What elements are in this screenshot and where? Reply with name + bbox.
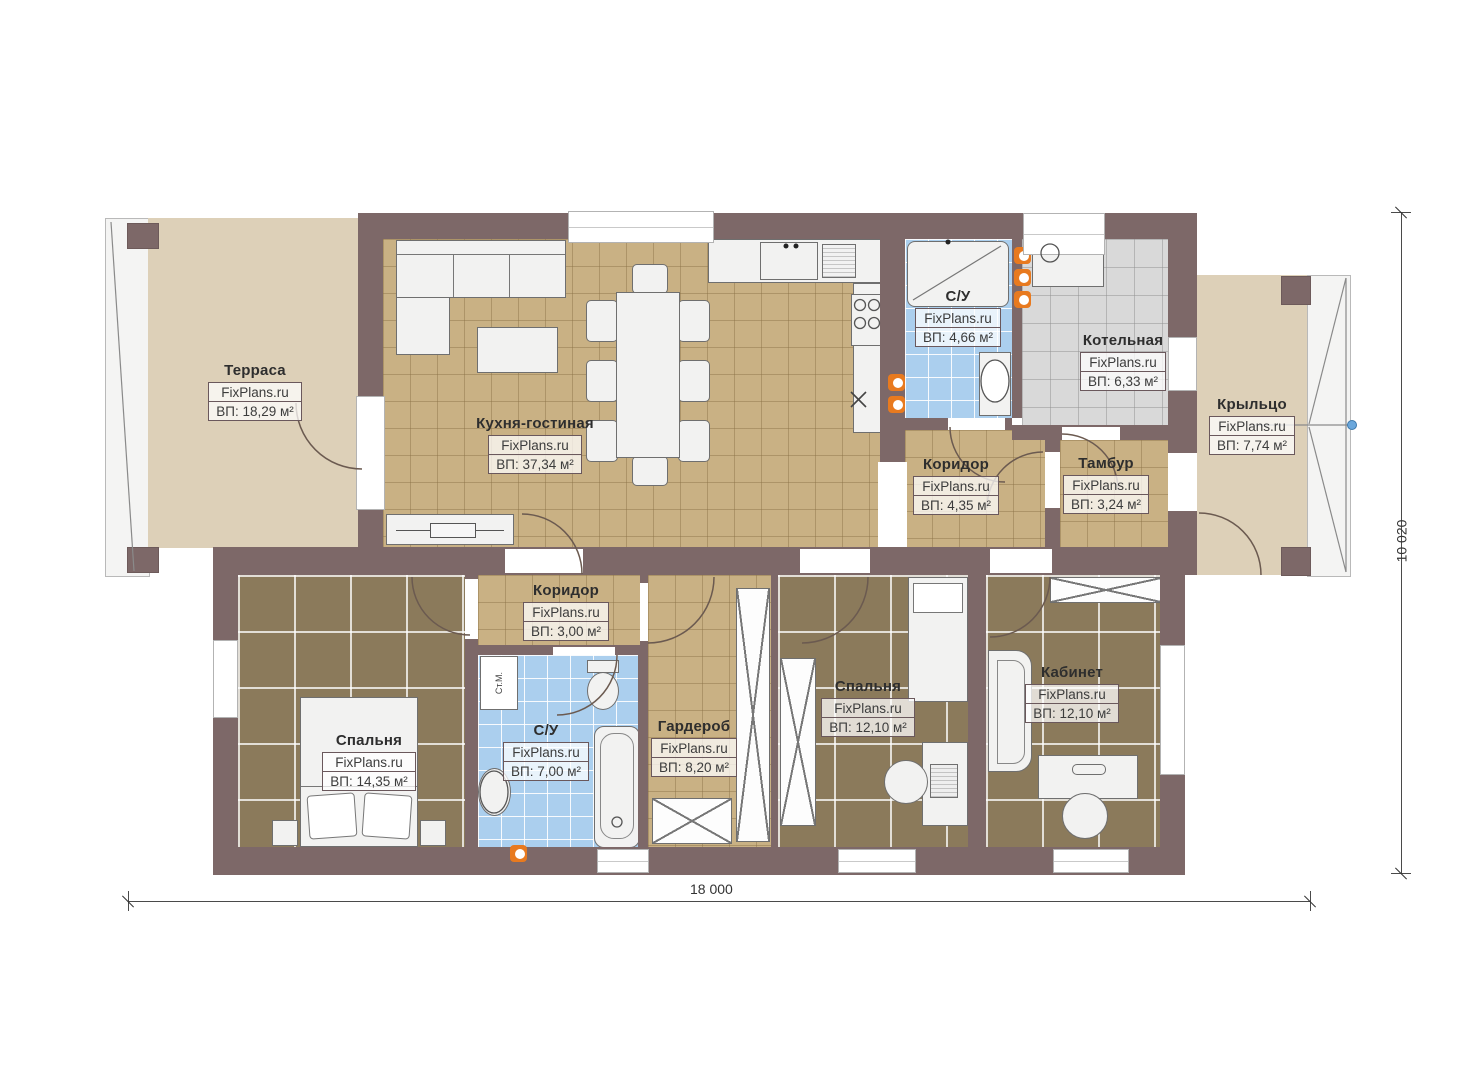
room-area: ВП: 3,24 м²: [1064, 495, 1148, 513]
radiator: [1014, 269, 1031, 286]
room-name: Крыльцо: [1202, 396, 1302, 413]
wall-bottom: [213, 847, 1185, 875]
wall-wardrobe-bedroom2: [771, 575, 778, 847]
watermark: FixPlans.ru: [524, 603, 608, 622]
terrace-door-glazing: [356, 396, 385, 510]
room-name: Спальня: [312, 732, 426, 749]
kitchen-hall-door-gap: [505, 549, 583, 573]
radiator: [888, 396, 905, 413]
room-area: ВП: 18,29 м²: [209, 402, 301, 420]
toilet-bowl: [587, 672, 619, 710]
radiator: [510, 845, 527, 862]
bathroom-lower-door-gap: [553, 647, 615, 655]
porch-column: [1282, 277, 1310, 304]
window-right-office: [1160, 645, 1185, 775]
dining-chair: [586, 300, 618, 342]
wardrobe-cabinet: [780, 658, 816, 826]
room-name: Спальня: [816, 678, 920, 695]
room-label-office: Кабинет FixPlans.ru ВП: 12,10 м²: [1022, 664, 1122, 723]
window-mullion: [1054, 861, 1128, 862]
watermark: FixPlans.ru: [1081, 353, 1165, 372]
radiator: [1014, 291, 1031, 308]
room-area: ВП: 12,10 м²: [822, 718, 914, 736]
desk-chair: [884, 760, 928, 804]
nightstand: [272, 820, 298, 846]
terrace-steps: [105, 218, 150, 577]
room-name: С/У: [912, 288, 1004, 305]
kitchen-sink: [760, 242, 818, 280]
watermark: FixPlans.ru: [1026, 685, 1118, 704]
terrace-column: [128, 548, 158, 572]
sofa-cushion-line: [509, 254, 510, 297]
pillow: [913, 583, 963, 613]
wardrobe-door-gap: [640, 583, 648, 641]
office-door-gap: [990, 549, 1052, 573]
watermark: FixPlans.ru: [489, 436, 581, 455]
room-area: ВП: 3,00 м²: [524, 622, 608, 640]
watermark: FixPlans.ru: [1210, 417, 1294, 436]
room-label-corridor-upper: Коридор FixPlans.ru ВП: 4,35 м²: [906, 456, 1006, 515]
room-area: ВП: 12,10 м²: [1026, 704, 1118, 722]
watermark: FixPlans.ru: [1064, 476, 1148, 495]
window-mullion: [569, 227, 713, 228]
wall-bathroom-left: [880, 239, 905, 465]
watermark: FixPlans.ru: [914, 477, 998, 496]
room-name: Коридор: [906, 456, 1006, 473]
boiler-door-gap: [1062, 427, 1120, 440]
wardrobe-cabinet: [736, 588, 770, 842]
window-bottom-bathroom: [597, 849, 649, 873]
dining-chair: [678, 360, 710, 402]
washing-machine: Ст.М.: [480, 656, 518, 710]
room-area: ВП: 8,20 м²: [652, 758, 736, 776]
room-label-bedroom-2: Спальня FixPlans.ru ВП: 12,10 м²: [816, 678, 920, 737]
dimension-height-label: 10 020: [1393, 520, 1409, 563]
porch-column: [1282, 548, 1310, 575]
watermark: FixPlans.ru: [209, 383, 301, 402]
sofa-chaise: [396, 297, 450, 355]
room-area: ВП: 7,74 м²: [1210, 436, 1294, 454]
window-mullion: [839, 861, 915, 862]
window-top-boiler: [1023, 213, 1105, 255]
bath-counter: [979, 352, 1011, 416]
room-label-porch: Крыльцо FixPlans.ru ВП: 7,74 м²: [1202, 396, 1302, 455]
window-left-bedroom1: [213, 640, 238, 718]
room-name: С/У: [500, 722, 592, 739]
sofa-cushion-line: [453, 254, 454, 297]
pillow: [362, 792, 413, 839]
room-area: ВП: 14,35 м²: [323, 772, 415, 790]
sofa-back-line: [397, 254, 565, 255]
bathroom-upper-door-gap: [948, 418, 1005, 430]
dining-chair: [586, 360, 618, 402]
room-name: Гардероб: [644, 718, 744, 735]
room-name: Коридор: [516, 582, 616, 599]
room-area: ВП: 6,33 м²: [1081, 372, 1165, 390]
wall-right-upper: [1168, 213, 1197, 575]
watermark: FixPlans.ru: [652, 739, 736, 758]
drainboard: [822, 244, 856, 278]
terrace-column: [128, 224, 158, 248]
wardrobe-cabinet: [1050, 577, 1162, 603]
window-mullion: [598, 861, 648, 862]
room-name: Терраса: [196, 362, 314, 379]
room-label-corridor-lower: Коридор FixPlans.ru ВП: 3,00 м²: [516, 582, 616, 641]
porch-door-gap: [1168, 453, 1197, 511]
wardrobe-cabinet: [652, 798, 732, 844]
bathtub: [594, 726, 640, 848]
floor-plan: Ст.М.: [0, 0, 1474, 1080]
stove: [851, 294, 882, 346]
room-label-bathroom-lower: С/У FixPlans.ru ВП: 7,00 м²: [500, 722, 592, 781]
room-area: ВП: 4,66 м²: [916, 328, 1000, 346]
watermark: FixPlans.ru: [504, 743, 588, 762]
wall-bedroom2-office: [968, 575, 986, 847]
bedroom2-door-gap: [800, 549, 870, 573]
bedroom1-door-gap: [465, 579, 478, 639]
room-label-kitchen-living: Кухня-гостиная FixPlans.ru ВП: 37,34 м²: [475, 415, 595, 474]
dining-chair: [678, 420, 710, 462]
office-sofa-seat: [997, 660, 1025, 764]
porch-steps: [1307, 275, 1351, 577]
sofa: [396, 240, 566, 298]
nightstand: [420, 820, 446, 846]
room-label-boiler: Котельная FixPlans.ru ВП: 6,33 м²: [1073, 332, 1173, 391]
dining-chair: [632, 264, 668, 294]
window-mullion: [1024, 234, 1104, 235]
room-name: Котельная: [1073, 332, 1173, 349]
room-name: Кабинет: [1022, 664, 1122, 681]
coffee-table: [477, 327, 558, 373]
watermark: FixPlans.ru: [916, 309, 1000, 328]
room-area: ВП: 7,00 м²: [504, 762, 588, 780]
room-name: Тамбур: [1058, 455, 1154, 472]
dimension-line-width: [128, 901, 1310, 902]
kitchen-corridor-opening: [878, 462, 907, 547]
room-label-bathroom-upper: С/У FixPlans.ru ВП: 4,66 м²: [912, 288, 1004, 347]
bathtub-inner: [600, 733, 634, 839]
room-name: Кухня-гостиная: [475, 415, 595, 432]
room-area: ВП: 4,35 м²: [914, 496, 998, 514]
wall-bathroom-boiler: [1012, 239, 1022, 418]
desk-monitor: [930, 764, 958, 798]
room-label-terrace: Терраса FixPlans.ru ВП: 18,29 м²: [196, 362, 314, 421]
room-label-vestibule: Тамбур FixPlans.ru ВП: 3,24 м²: [1058, 455, 1154, 514]
dining-chair: [632, 456, 668, 486]
wall-left-kitchen: [358, 213, 383, 575]
dining-table: [616, 292, 680, 458]
washing-machine-label: Ст.М.: [494, 672, 504, 694]
dimension-width-label: 18 000: [690, 881, 733, 897]
office-chair: [1062, 793, 1108, 839]
dining-chair: [678, 300, 710, 342]
radiator: [888, 374, 905, 391]
pillow: [307, 792, 358, 839]
room-label-wardrobe: Гардероб FixPlans.ru ВП: 8,20 м²: [644, 718, 744, 777]
room-area: ВП: 37,34 м²: [489, 455, 581, 473]
window-bottom-office: [1053, 849, 1129, 873]
room-label-bedroom-1: Спальня FixPlans.ru ВП: 14,35 м²: [312, 732, 426, 791]
watermark: FixPlans.ru: [822, 699, 914, 718]
window-bottom-bedroom2: [838, 849, 916, 873]
window-top-living: [568, 211, 714, 243]
tv: [430, 523, 476, 538]
office-laptop: [1072, 764, 1106, 775]
watermark: FixPlans.ru: [323, 753, 415, 772]
